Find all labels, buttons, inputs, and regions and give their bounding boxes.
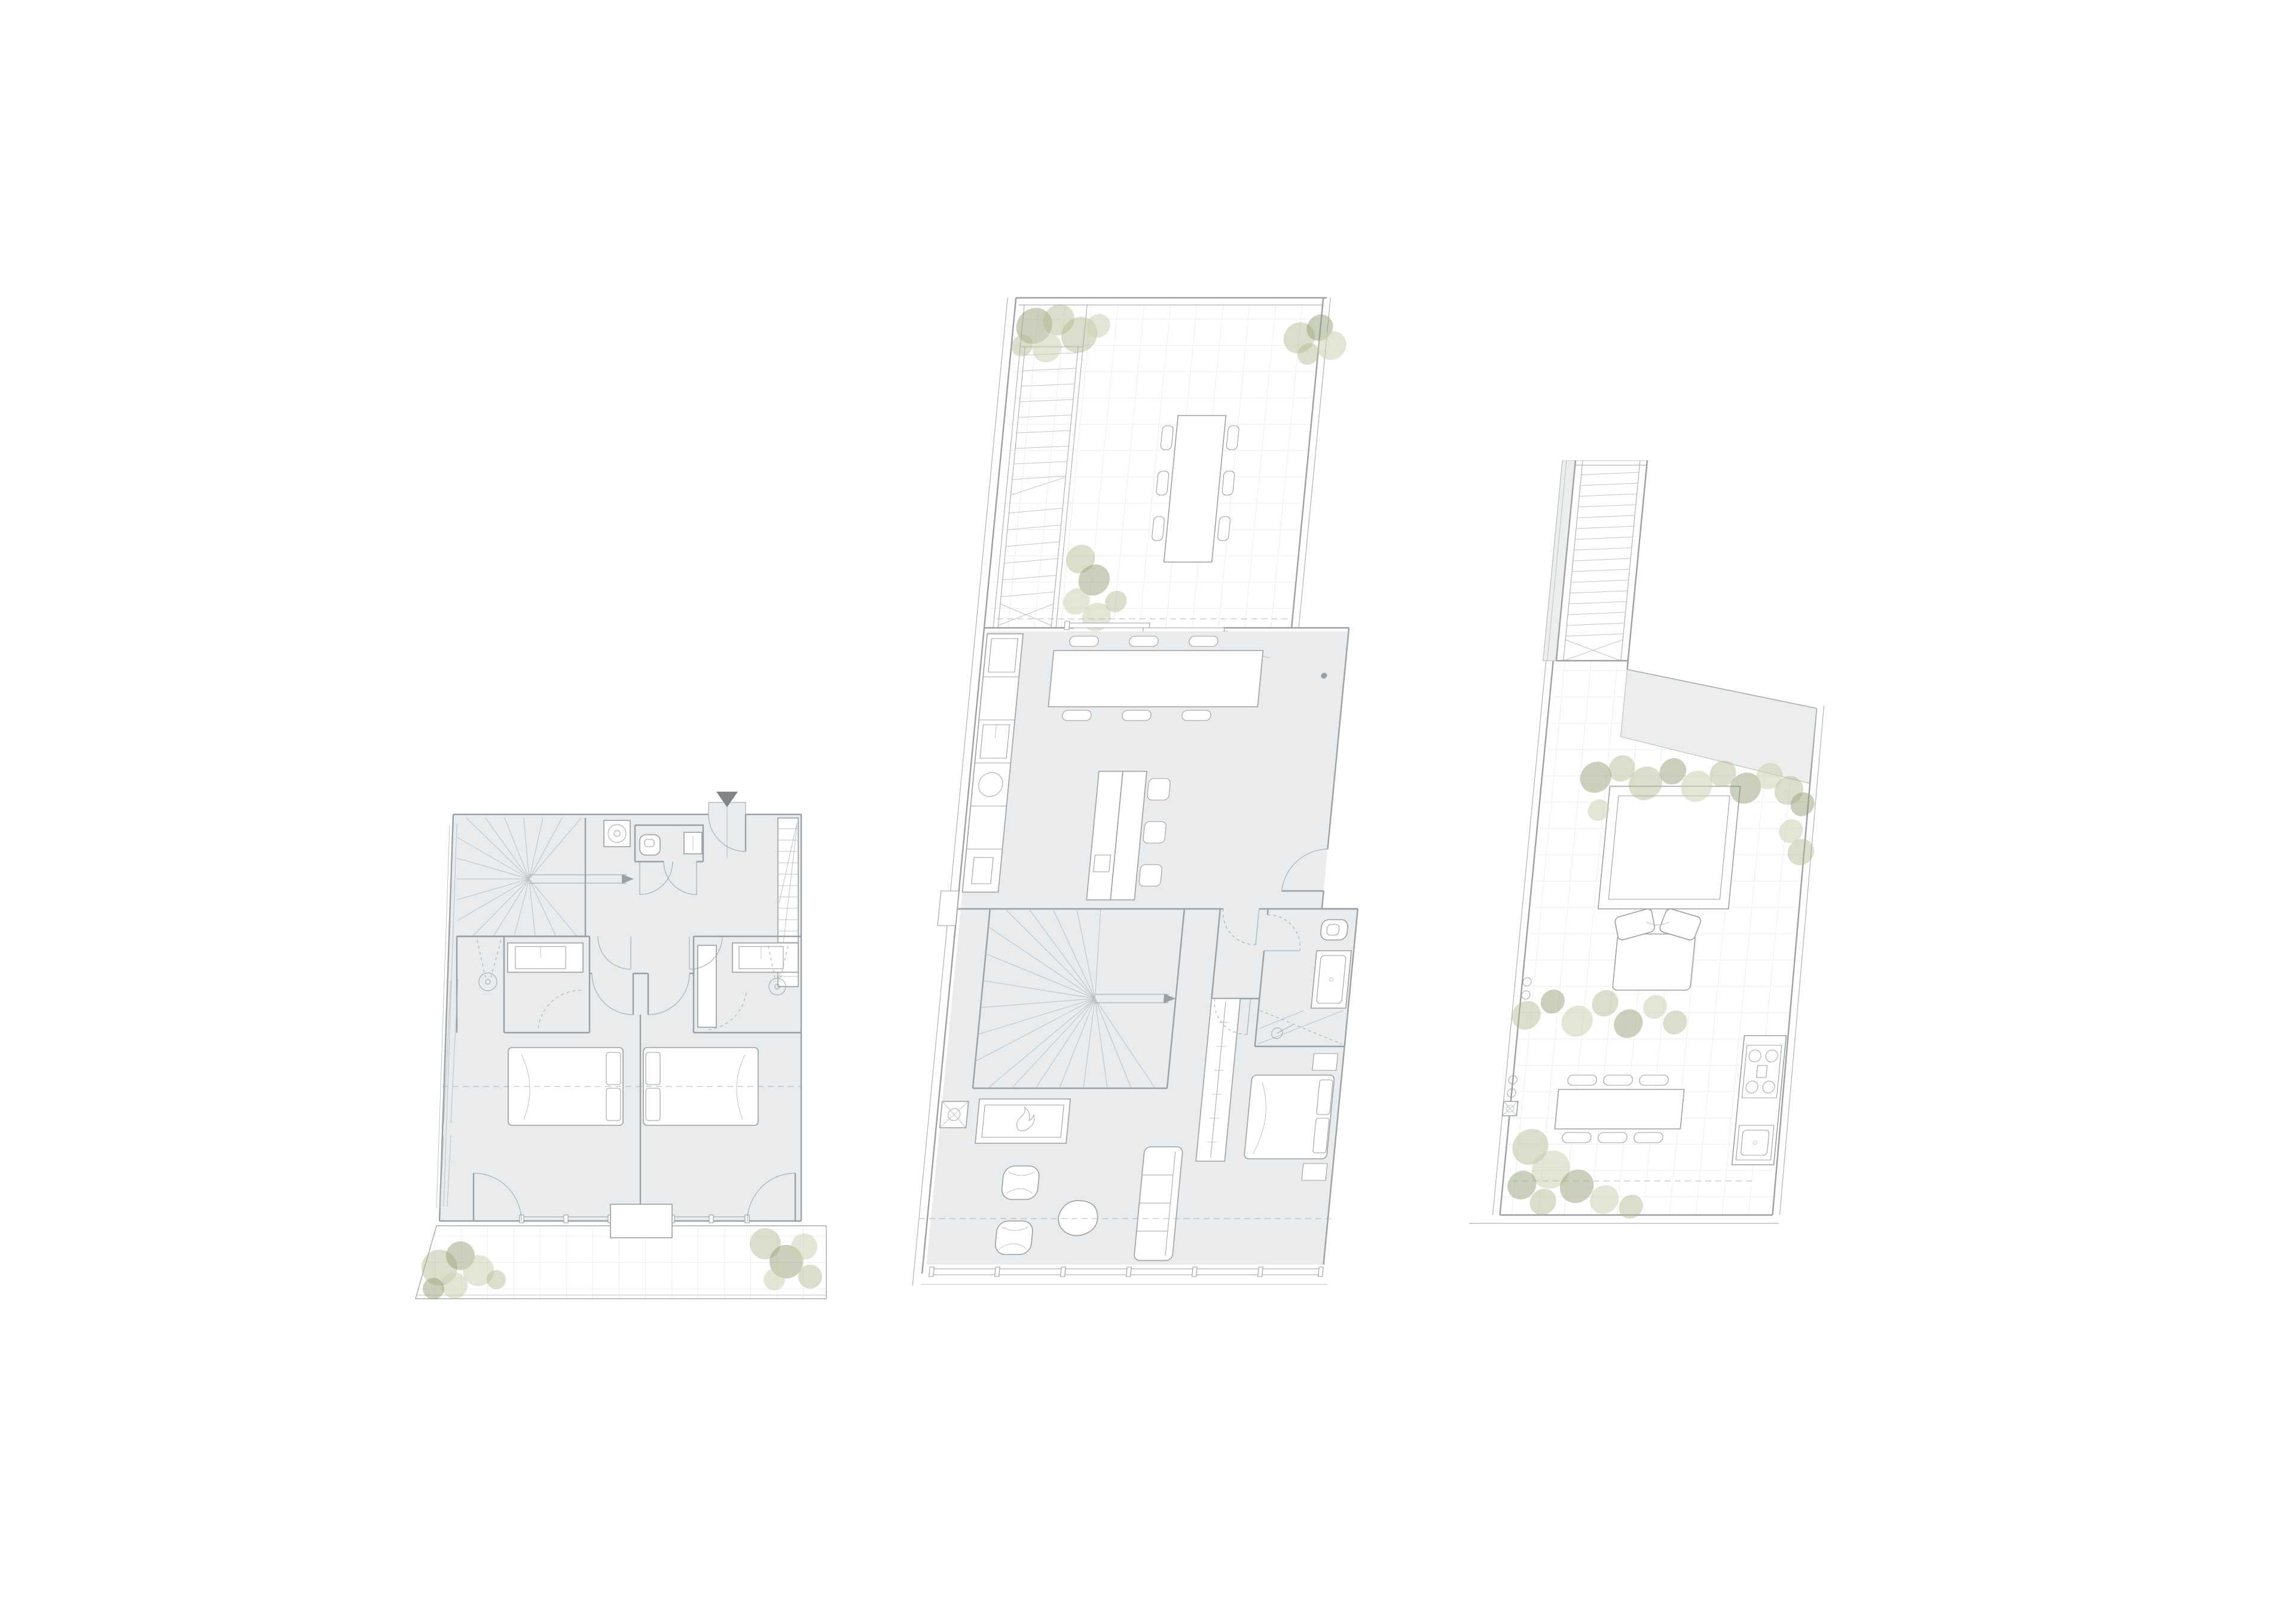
- straight-staircase: [1543, 460, 1647, 661]
- floor-plan-left: [383, 789, 849, 1315]
- bathroom-toilet: [1320, 920, 1348, 940]
- wc-basin: [684, 832, 702, 854]
- terrace-level: [1469, 460, 1852, 1223]
- washing-machine: [604, 820, 630, 847]
- kitchen-island: [1086, 771, 1171, 900]
- fireplace: [975, 1099, 1070, 1143]
- building: [909, 298, 1387, 1286]
- floor-plan-middle: [909, 293, 1387, 1309]
- armchair: [1001, 1166, 1040, 1199]
- window-wall: [921, 1267, 1329, 1284]
- floor-area: [439, 802, 801, 1221]
- outdoor-kitchen-sink: [1736, 1125, 1774, 1160]
- armchair: [994, 1221, 1033, 1254]
- wc-toilet: [640, 835, 660, 855]
- skylight-rooflight: [1598, 786, 1741, 909]
- nightstand: [1302, 1164, 1327, 1180]
- bathroom-vanity: [1311, 951, 1351, 1008]
- wardrobe: [698, 945, 716, 1027]
- floor-plan-sheet: [0, 0, 2296, 1624]
- exterior-step: [938, 891, 959, 926]
- vanity-unit: [508, 943, 583, 972]
- double-bed: [1244, 1075, 1335, 1159]
- vanity-unit: [732, 943, 798, 972]
- outdoor-kitchen-grill: [1742, 1045, 1781, 1098]
- winder-staircase: [973, 909, 1184, 1088]
- planter-box: [610, 1204, 672, 1238]
- utility-box: [940, 1101, 969, 1128]
- nightstand: [1312, 1054, 1338, 1070]
- floor-plan-right: [1453, 460, 1871, 1262]
